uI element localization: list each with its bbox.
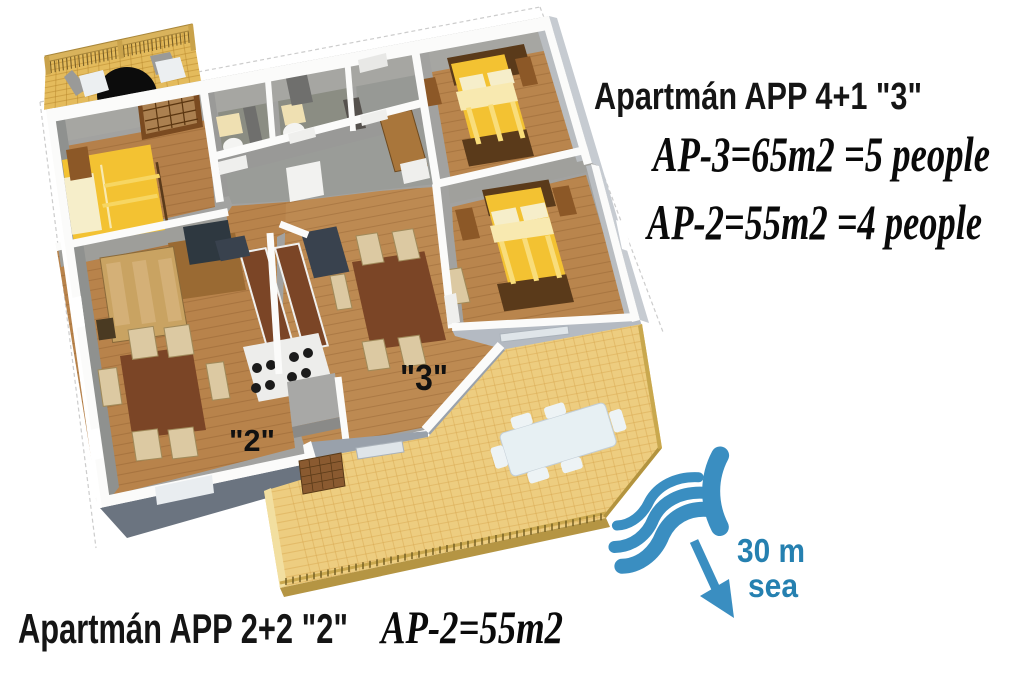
svg-text:AP-2=55m2 =4 people: AP-2=55m2 =4 people (645, 194, 982, 250)
svg-text:Apartmán APP 4+1 "3": Apartmán APP 4+1 "3" (594, 76, 922, 118)
svg-text:sea: sea (748, 567, 799, 604)
svg-text:Apartmán APP 2+2 "2": Apartmán APP 2+2 "2" (18, 605, 348, 652)
svg-text:"3": "3" (400, 357, 448, 398)
svg-text:30 m: 30 m (737, 532, 805, 569)
svg-text:AP-3=65m2 =5 people: AP-3=65m2 =5 people (651, 126, 990, 182)
svg-text:AP-2=55m2: AP-2=55m2 (379, 602, 563, 654)
svg-text:"2": "2" (229, 423, 275, 458)
